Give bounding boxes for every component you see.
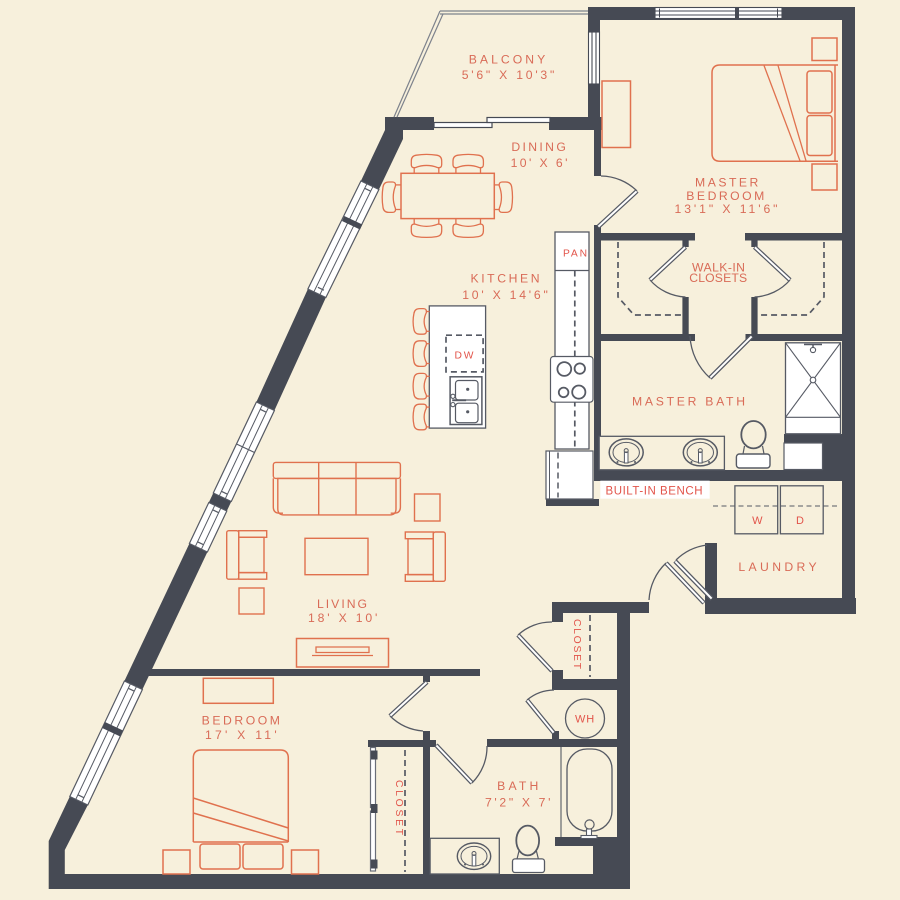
svg-text:WH: WH <box>575 714 595 726</box>
svg-text:10' X 6': 10' X 6' <box>511 156 568 170</box>
svg-text:BUILT-IN BENCH: BUILT-IN BENCH <box>606 485 703 497</box>
svg-text:7'2" X 7': 7'2" X 7' <box>485 795 550 809</box>
svg-text:CLOSETS: CLOSETS <box>689 271 747 285</box>
svg-text:W: W <box>752 515 763 527</box>
svg-text:LAUNDRY: LAUNDRY <box>738 560 816 574</box>
svg-text:MASTER BATH: MASTER BATH <box>632 395 745 409</box>
svg-text:DW: DW <box>455 351 474 362</box>
svg-text:18' X 10': 18' X 10' <box>308 611 377 625</box>
svg-text:DINING: DINING <box>511 140 565 154</box>
svg-text:17' X 11': 17' X 11' <box>205 728 277 742</box>
svg-text:BALCONY: BALCONY <box>469 53 546 67</box>
svg-text:PAN: PAN <box>563 248 587 259</box>
svg-text:D: D <box>796 515 804 527</box>
svg-text:10' X 14'6": 10' X 14'6" <box>462 288 548 302</box>
